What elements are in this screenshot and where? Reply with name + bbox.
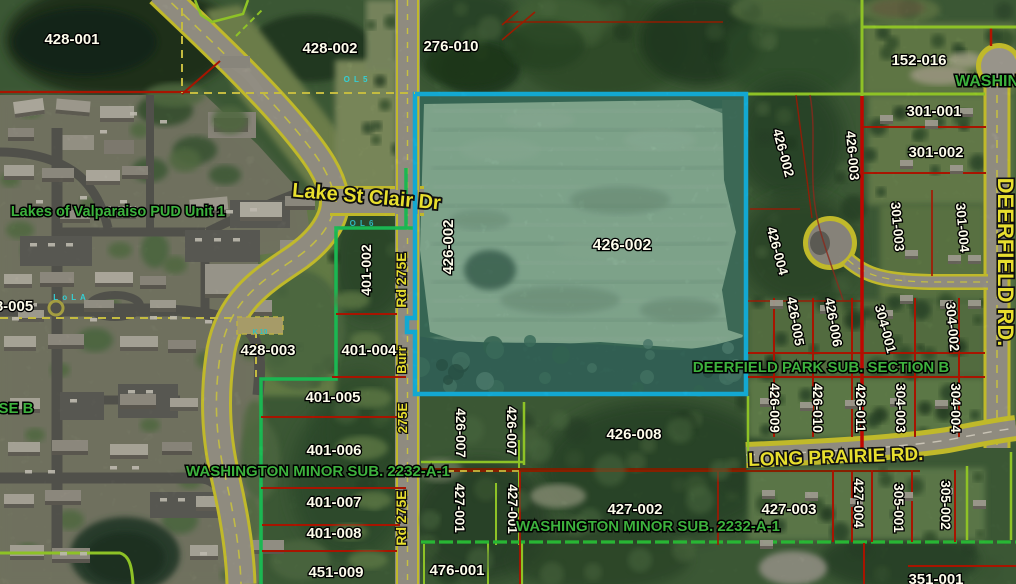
svg-text:426-002: 426-002 bbox=[440, 219, 457, 274]
svg-text:401-008: 401-008 bbox=[306, 525, 361, 542]
svg-text:427-002: 427-002 bbox=[607, 501, 662, 518]
svg-text:Rd 275E: Rd 275E bbox=[393, 490, 409, 545]
svg-text:427-001: 427-001 bbox=[452, 483, 467, 533]
svg-text:304-003: 304-003 bbox=[893, 383, 908, 433]
svg-text:427-003: 427-003 bbox=[761, 501, 816, 518]
svg-text:426-007: 426-007 bbox=[453, 408, 468, 458]
svg-text:WASHINGTON MINOR SUB. 2232-A-1: WASHINGTON MINOR SUB. 2232-A-1 bbox=[186, 463, 450, 480]
svg-text:DEERFIELD PARK SUB. SECTION B: DEERFIELD PARK SUB. SECTION B bbox=[693, 359, 950, 376]
svg-text:401-005: 401-005 bbox=[305, 389, 360, 406]
svg-text:426-010: 426-010 bbox=[810, 383, 825, 433]
svg-text:301-002: 301-002 bbox=[908, 144, 963, 161]
svg-text:DEERFIELD RD.: DEERFIELD RD. bbox=[993, 178, 1016, 347]
svg-text:428-003: 428-003 bbox=[240, 342, 295, 359]
svg-text:8-005: 8-005 bbox=[0, 298, 33, 315]
svg-text:428-002: 428-002 bbox=[302, 40, 357, 57]
svg-text:O L 5: O L 5 bbox=[344, 75, 369, 84]
svg-text:K 10: K 10 bbox=[253, 329, 268, 336]
svg-text:426-008: 426-008 bbox=[606, 426, 661, 443]
svg-text:L o L A: L o L A bbox=[53, 293, 87, 302]
svg-text:WASHINGTON: WASHINGTON bbox=[955, 73, 1016, 90]
svg-text:Burr: Burr bbox=[394, 346, 409, 373]
svg-text:426-007: 426-007 bbox=[504, 406, 519, 456]
svg-text:426-002: 426-002 bbox=[593, 237, 652, 254]
svg-text:276-010: 276-010 bbox=[423, 38, 478, 55]
svg-text:WASHINGTON MINOR SUB. 2232-A-1: WASHINGTON MINOR SUB. 2232-A-1 bbox=[516, 518, 780, 535]
svg-text:401-002: 401-002 bbox=[358, 244, 374, 296]
svg-text:401-007: 401-007 bbox=[306, 494, 361, 511]
svg-text:401-006: 401-006 bbox=[306, 442, 361, 459]
svg-text:426-009: 426-009 bbox=[767, 383, 782, 433]
svg-text:SE B: SE B bbox=[0, 400, 34, 417]
svg-text:152-016: 152-016 bbox=[891, 52, 946, 69]
svg-text:305-001: 305-001 bbox=[891, 483, 906, 533]
svg-text:426-011: 426-011 bbox=[853, 384, 868, 433]
svg-text:275E: 275E bbox=[395, 402, 410, 433]
svg-text:Lakes of Valparaiso PUD Unit 1: Lakes of Valparaiso PUD Unit 1 bbox=[11, 204, 225, 220]
svg-text:451-009: 451-009 bbox=[308, 564, 363, 581]
svg-text:428-001: 428-001 bbox=[44, 31, 99, 48]
svg-text:401-004: 401-004 bbox=[341, 342, 397, 359]
svg-text:301-001: 301-001 bbox=[906, 103, 961, 120]
svg-text:O L 6: O L 6 bbox=[350, 219, 375, 228]
svg-text:305-002: 305-002 bbox=[938, 480, 953, 530]
svg-text:351-001: 351-001 bbox=[908, 571, 963, 584]
svg-text:Rd 275E: Rd 275E bbox=[393, 252, 409, 307]
svg-text:427-004: 427-004 bbox=[851, 478, 866, 528]
svg-text:304-004: 304-004 bbox=[948, 383, 963, 433]
svg-text:476-001: 476-001 bbox=[429, 562, 484, 579]
